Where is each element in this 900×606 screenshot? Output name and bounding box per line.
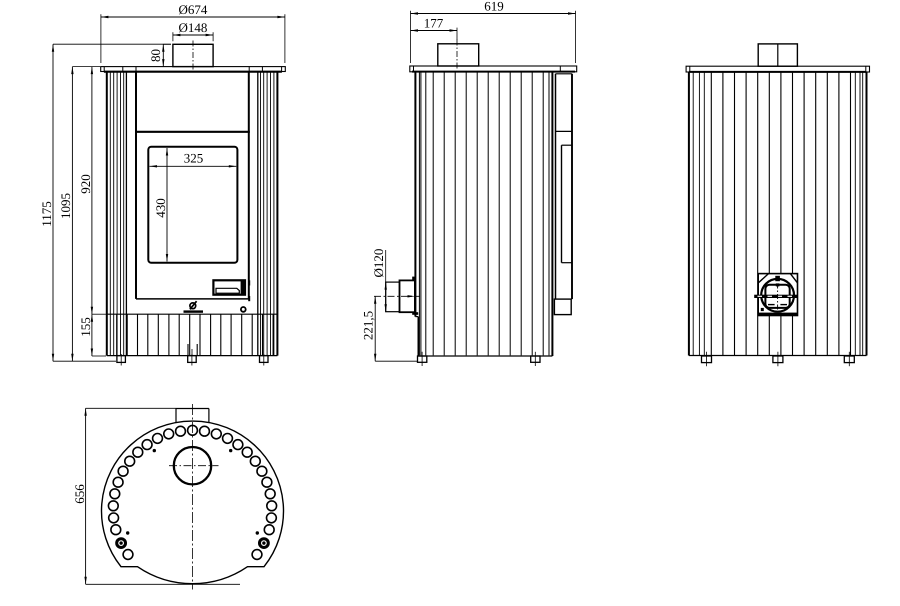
- svg-text:1095: 1095: [58, 193, 73, 219]
- svg-text:177: 177: [424, 16, 444, 31]
- svg-text:80: 80: [148, 49, 163, 62]
- svg-text:325: 325: [184, 150, 204, 165]
- svg-text:920: 920: [78, 174, 93, 194]
- svg-text:Ø120: Ø120: [371, 249, 386, 278]
- svg-text:221,5: 221,5: [360, 311, 375, 340]
- svg-text:619: 619: [484, 0, 504, 14]
- svg-text:656: 656: [72, 484, 87, 504]
- svg-text:430: 430: [153, 198, 168, 218]
- svg-text:1175: 1175: [39, 201, 54, 227]
- svg-text:155: 155: [78, 317, 93, 337]
- svg-text:Ø148: Ø148: [179, 20, 208, 35]
- svg-text:Ø674: Ø674: [179, 2, 208, 17]
